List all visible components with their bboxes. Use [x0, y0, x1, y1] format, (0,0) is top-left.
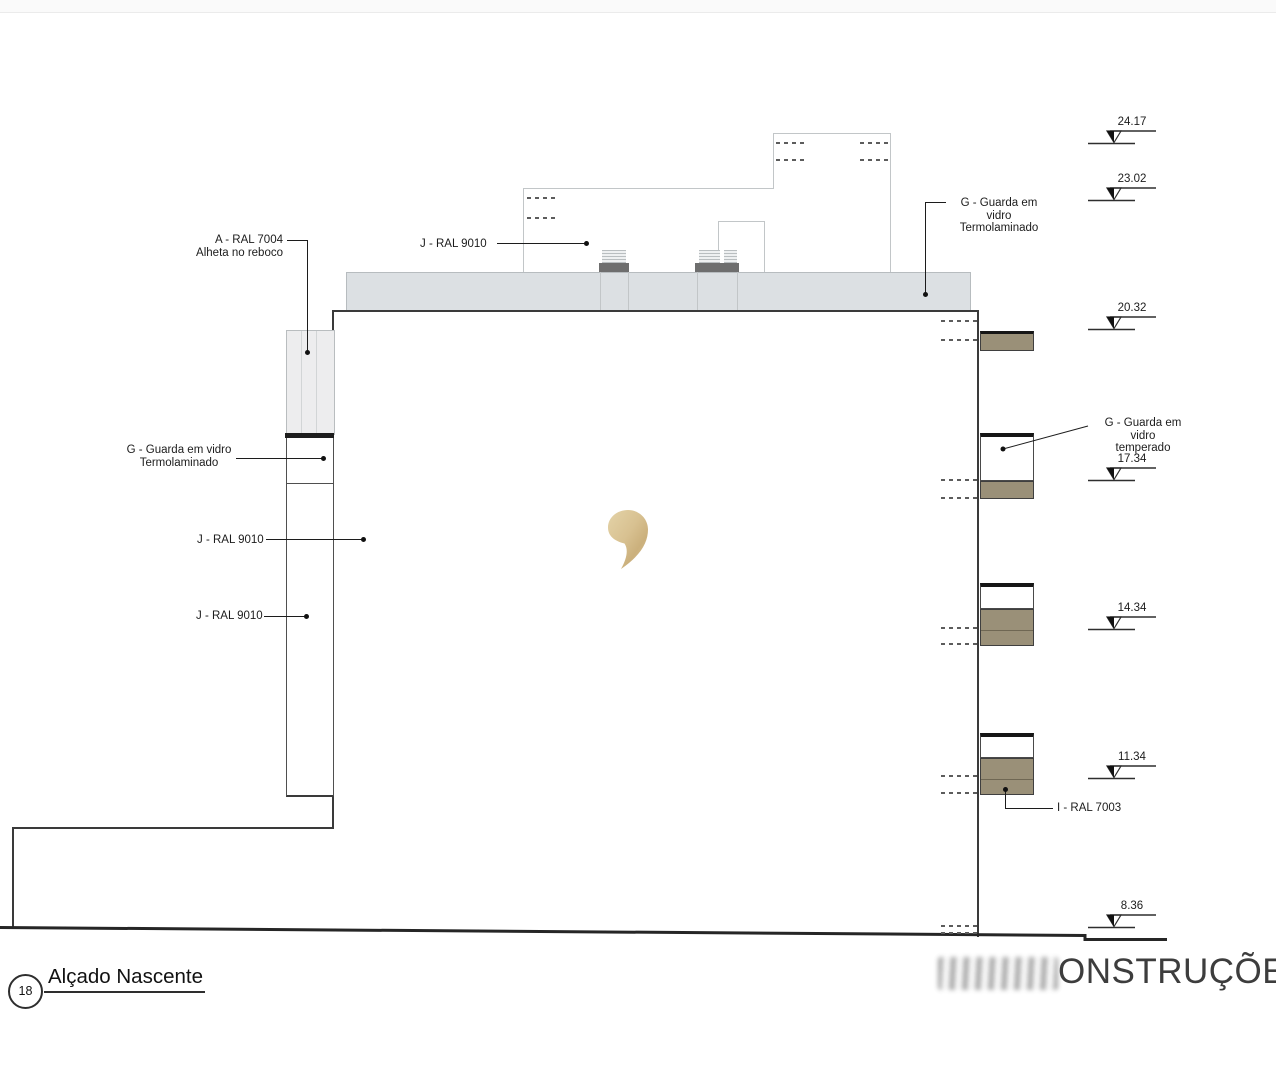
leader-i7003-dot	[1003, 787, 1008, 792]
tower-dash-right-2	[860, 159, 890, 161]
facade-panel-joint-1	[301, 331, 302, 433]
title-underline	[44, 991, 205, 993]
elevation-drawing-page: A - RAL 7004 Alheta no reboco J - RAL 90…	[0, 0, 1276, 1080]
leader-a-ral7004-h	[287, 240, 308, 241]
gold-comma-logo-icon	[607, 509, 649, 571]
watermark-smudge	[938, 957, 1058, 990]
label-a-ral-7004: A - RAL 7004 Alheta no reboco	[196, 234, 283, 259]
penthouse-dash-2	[527, 217, 557, 219]
level-value: 14.34	[1108, 602, 1156, 614]
level-symbol-icon	[1088, 187, 1158, 202]
building-top-line	[333, 310, 979, 312]
label-g-vidro-left: G - Guarda em vidro Termolaminado	[126, 444, 232, 469]
leader-i7003-h	[1005, 808, 1053, 809]
level-symbol-icon	[1088, 467, 1158, 482]
tower-dash-left-2	[776, 159, 806, 161]
label-g-vidro-top-right: G - Guarda em vidro Termolaminado	[947, 197, 1051, 235]
chimney-a-shaft-left	[600, 272, 601, 310]
leader-gvidro-right	[998, 420, 1092, 454]
level-value: 17.34	[1108, 453, 1156, 465]
leader-gvidro-topright-h	[925, 202, 946, 203]
penthouse-dash-1	[527, 197, 557, 199]
leader-gvidro-left-dot	[321, 456, 326, 461]
level-value: 24.17	[1108, 116, 1156, 128]
leader-j9010-low-dot	[304, 614, 309, 619]
slab-dash-l2b	[941, 643, 978, 645]
label-j-ral-9010-roof: J - RAL 9010	[420, 238, 487, 251]
tower-outline-left	[773, 133, 774, 189]
slab-dash-l2a	[941, 627, 978, 629]
plinth-left-line	[12, 827, 14, 928]
leader-j9010-roof-dot	[584, 241, 589, 246]
balcony-glass-guard-level2	[980, 583, 1034, 609]
label-j-ral-9010-mid: J - RAL 9010	[197, 534, 264, 547]
leader-gvidro-topright-v	[925, 202, 926, 295]
leader-a-ral7004-v	[307, 240, 308, 352]
drawing-number-badge: 18	[8, 974, 43, 1009]
level-symbol-icon	[1088, 765, 1158, 780]
penthouse-outline-top	[523, 188, 773, 189]
ground-line	[0, 920, 1276, 950]
label-g-vidro-top-right-line2: Termolaminado	[947, 222, 1051, 235]
chimney-a-vent-hatch	[602, 250, 626, 263]
slab-dash-l3b	[941, 497, 978, 499]
label-j-ral-9010-low: J - RAL 9010	[196, 610, 263, 623]
chimney-b-vent-hatch-2	[724, 250, 737, 263]
label-a-ral-7004-line1: A - RAL 7004	[196, 234, 283, 247]
roofbox-outline-left	[718, 221, 719, 252]
label-g-vidro-left-line2: Termolaminado	[126, 457, 232, 470]
chimney-b-cap	[695, 263, 739, 272]
slab-dash-l4b	[941, 339, 978, 341]
leader-i7003-v	[1005, 789, 1006, 809]
leader-j9010-mid-dot	[361, 537, 366, 542]
leader-a-ral7004-dot	[305, 350, 310, 355]
balcony-slab-level4	[980, 331, 1034, 351]
tower-dash-right-1	[860, 142, 890, 144]
parapet-band	[346, 272, 971, 312]
level-value: 11.34	[1108, 751, 1156, 763]
drawing-title: Alçado Nascente	[48, 965, 203, 989]
chimney-b-shaft-left	[697, 272, 698, 310]
slab-dash-ground-b	[941, 932, 978, 934]
level-marker-17-34: 17.34	[1088, 455, 1158, 483]
level-marker-8-36: 8.36	[1088, 902, 1158, 930]
balcony-slab-joint-level1	[981, 779, 1033, 780]
level-marker-14-34: 14.34	[1088, 604, 1158, 632]
slab-dash-l1b	[941, 792, 978, 794]
balcony-slab-level3	[980, 481, 1034, 499]
label-a-ral-7004-line2: Alheta no reboco	[196, 247, 283, 260]
chimney-b-shaft-right	[737, 272, 738, 310]
left-column-guard-line	[286, 483, 333, 484]
slab-dash-l3a	[941, 479, 978, 481]
leader-j9010-mid	[266, 539, 363, 540]
level-value: 8.36	[1108, 900, 1156, 912]
level-symbol-icon	[1088, 130, 1158, 145]
balcony-glass-guard-level1	[980, 733, 1034, 758]
left-column-body	[286, 438, 334, 797]
roofbox-outline-top	[718, 221, 764, 222]
label-g-vidro-right: G - Guarda em vidro temperado	[1092, 417, 1194, 455]
leader-j9010-low	[264, 616, 307, 617]
level-marker-23-02: 23.02	[1088, 175, 1158, 203]
slab-dash-ground-a	[941, 925, 978, 927]
chimney-b-vent-hatch-1	[699, 250, 720, 263]
tower-outline-top	[773, 133, 891, 134]
leader-j9010-roof	[497, 243, 587, 244]
level-symbol-icon	[1088, 316, 1158, 331]
balcony-slab-joint-level2	[981, 630, 1033, 631]
facade-panel-ral7004	[286, 330, 335, 435]
level-symbol-icon	[1088, 914, 1158, 929]
label-g-vidro-right-line1: G - Guarda em vidro	[1092, 417, 1194, 442]
slab-dash-l1a	[941, 775, 978, 777]
label-i-ral-7003: I - RAL 7003	[1057, 802, 1121, 815]
building-right-wall	[977, 310, 979, 937]
page-top-strip	[0, 0, 1276, 13]
tower-dash-left-1	[776, 142, 806, 144]
level-value: 23.02	[1108, 173, 1156, 185]
plinth-step-line	[12, 827, 334, 829]
balcony-slab-level2	[980, 609, 1034, 646]
level-value: 20.32	[1108, 302, 1156, 314]
watermark-text: ONSTRUÇÕES	[1058, 952, 1276, 992]
leader-gvidro-topright-dot	[923, 292, 928, 297]
leader-gvidro-left	[236, 458, 323, 459]
level-marker-20-32: 20.32	[1088, 304, 1158, 332]
slab-dash-l4a	[941, 320, 978, 322]
label-g-vidro-left-line1: G - Guarda em vidro	[126, 444, 232, 457]
chimney-a-shaft-right	[628, 272, 629, 310]
level-marker-24-17: 24.17	[1088, 118, 1158, 146]
chimney-a-cap	[599, 263, 629, 272]
level-marker-11-34: 11.34	[1088, 753, 1158, 781]
drawing-number: 18	[19, 984, 33, 998]
facade-panel-joint-2	[316, 331, 317, 433]
label-g-vidro-top-right-line1: G - Guarda em vidro	[947, 197, 1051, 222]
level-symbol-icon	[1088, 616, 1158, 631]
